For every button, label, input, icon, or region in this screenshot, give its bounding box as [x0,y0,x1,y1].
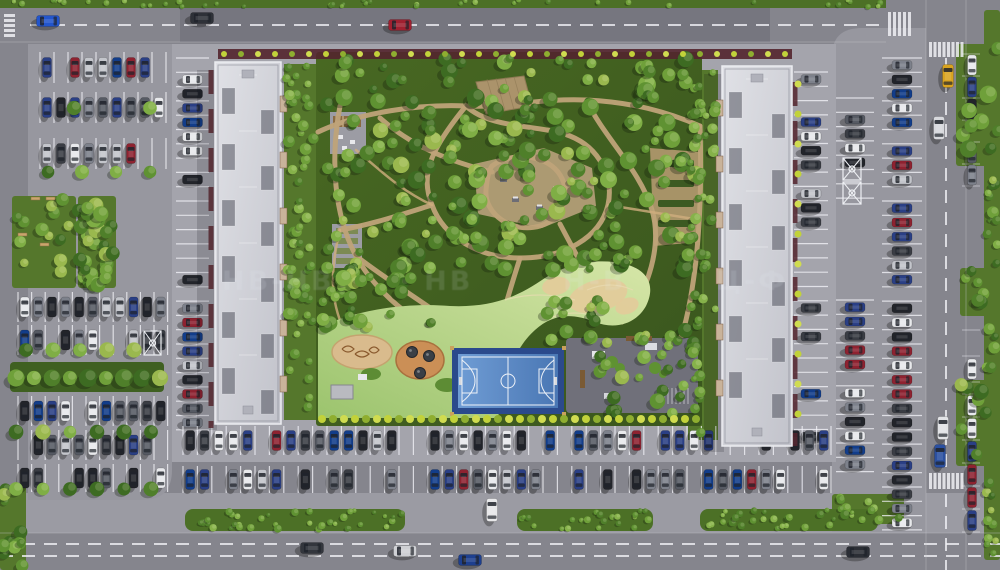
car-roof [187,364,198,367]
tree-highlight [959,379,966,386]
tree-highlight [302,292,308,298]
car-roof [849,306,860,309]
tree-highlight [432,193,437,198]
yellow-bush [604,415,612,423]
tree-highlight [693,123,699,129]
yellow-bush [795,201,802,208]
plaza-table-top [537,205,542,207]
tree-highlight [638,374,642,378]
tree-highlight [305,95,310,100]
tree-highlight [581,147,589,155]
tree-highlight [475,232,482,239]
yellow-bush [795,381,802,388]
tree-highlight [305,284,310,289]
tree-highlight [681,360,686,365]
car-rear-window [662,484,669,487]
car-rear-window [128,158,135,161]
tree-highlight [990,507,994,511]
crosswalk-bar [4,19,15,22]
tree-highlight [709,196,714,201]
car-rear-window [273,484,280,487]
car-rear-window [62,415,69,418]
car-rear-window [114,112,121,115]
tree-highlight [308,101,313,106]
tree-highlight [305,213,311,219]
tree-highlight [468,123,477,132]
car-roof [86,150,91,157]
car-roof [821,437,826,444]
car-roof [188,476,193,483]
car-roof [245,437,250,444]
tree-highlight [604,159,613,168]
car-roof [969,517,974,524]
tree-highlight [713,107,719,113]
car-rear-window [21,482,28,485]
roof-seam [239,298,257,300]
roof-seam [239,354,257,356]
car-rear-window [576,445,583,448]
car-rear-window [144,415,151,418]
car-rear-window [100,72,107,75]
roof-well [261,390,274,414]
tree-highlight [399,217,405,223]
yellow-bush [697,51,703,57]
car-roof [346,476,351,483]
roof-seam [746,358,768,360]
trampoline [415,368,426,379]
car-rear-window [518,484,525,487]
tree-highlight [200,520,203,523]
tree-highlight [987,517,992,522]
tree-highlight [307,403,312,408]
tree-highlight [371,227,377,233]
car-rear-window [35,449,42,452]
tree-highlight [593,316,600,323]
tree-highlight [988,324,994,330]
car-rear-window [460,484,467,487]
tree-highlight [321,523,325,527]
yellow-bush [459,51,465,57]
tree-highlight [460,258,466,264]
car-rear-window [201,445,208,448]
tree-highlight [530,69,535,74]
tree-highlight [838,2,841,5]
tree-highlight [479,120,485,126]
bench [31,197,40,200]
tree-highlight [586,205,591,210]
car-roof [375,437,380,444]
car-rear-window [156,112,163,115]
tree-highlight [602,75,608,81]
yellow-bush [357,51,363,57]
car-roof [849,434,860,437]
tree-highlight [991,207,998,214]
car-rear-window [748,484,755,487]
tree-highlight [337,190,344,197]
tree-highlight [322,298,327,303]
tree-highlight [298,251,303,256]
car-roof [896,78,907,81]
rooftop-unit [243,406,253,414]
plaza-table-top [513,197,518,199]
car-roof [231,437,236,444]
tree-highlight [586,188,592,194]
car-roof [187,392,198,395]
tree-highlight [105,343,113,351]
yellow-bush [527,415,535,423]
car-roof [849,334,860,337]
tree-highlight [352,115,359,122]
hoop-right [555,377,558,385]
tree-highlight [204,3,207,6]
car-rear-window [648,484,655,487]
car-rear-window [100,158,107,161]
car-roof [22,474,27,481]
yellow-bush [731,51,737,57]
tree-highlight [23,259,28,264]
tree-highlight [782,524,785,527]
tree-highlight [78,344,85,351]
car-roof [145,303,150,310]
car-roof [896,478,907,481]
tree-highlight [698,83,702,87]
tree-highlight [701,102,705,106]
tree-highlight [693,376,696,379]
yellow-bush [681,415,689,423]
yellow-bush [476,51,482,57]
picnic-table [338,135,343,139]
tree-highlight [384,514,386,516]
tree-highlight [358,249,363,254]
tree-highlight [401,511,404,514]
tree-highlight [59,266,66,273]
tree-highlight [970,267,976,273]
tree-highlight [633,525,636,528]
tree-highlight [982,289,988,295]
car-rear-window [806,445,813,448]
car-rear-window [244,445,251,448]
yellow-bush [795,261,802,268]
tree-highlight [712,147,718,153]
car-rear-window [21,415,28,418]
tree-highlight [379,284,386,291]
tree-highlight [503,262,511,270]
tree-highlight [588,265,592,269]
tree-highlight [878,516,883,521]
car-roof [63,441,68,448]
tree-highlight [597,230,603,236]
car-roof [896,207,907,210]
tree-highlight [989,363,995,369]
tree-highlight [995,260,1000,265]
tree-highlight [546,308,553,315]
tree-highlight [348,312,353,317]
car-roof [896,493,907,496]
tree-highlight [376,94,385,103]
car-rear-window [89,311,96,314]
tree-highlight [228,509,232,513]
tree-highlight [404,197,410,203]
car-roof [476,476,481,483]
car-roof [461,476,466,483]
yellow-bush [374,51,380,57]
tree-highlight [330,287,336,293]
tree-highlight [642,351,650,359]
tree-highlight [550,335,557,342]
car-rear-window [676,484,683,487]
tree-highlight [523,216,528,221]
car-roof [896,149,907,152]
tree-highlight [690,166,695,171]
car-roof [100,104,105,111]
tree-highlight [78,254,86,262]
car-roof [937,452,943,460]
trampoline [424,351,435,362]
car-roof [576,476,581,483]
yellow-bush [561,51,567,57]
car-roof [778,476,783,483]
car-roof [187,421,198,424]
tree-highlight [966,142,976,152]
tree-highlight [365,1,368,4]
tree-highlight [740,523,744,527]
car-roof [63,336,68,343]
tree-highlight [453,176,461,184]
car-roof [663,437,668,444]
tree-highlight [648,66,655,73]
crosswalk-bar [903,12,906,36]
yellow-bush [505,415,513,423]
tree-highlight [148,167,155,174]
car-rear-window [244,484,251,487]
crosswalk-bar [4,14,15,17]
tree-highlight [298,198,302,202]
car-roof [104,407,109,414]
tree-highlight [428,263,435,270]
roof-well [261,334,274,358]
car-roof [90,441,95,448]
tree-highlight [95,426,103,434]
car-rear-window [331,484,338,487]
car-roof [896,278,907,281]
car-roof [49,441,54,448]
tree-highlight [430,319,435,324]
car-roof [620,437,625,444]
car-rear-window [130,311,137,314]
yellow-bush [395,415,403,423]
car-rear-window [475,484,482,487]
car-roof [605,476,610,483]
tree-highlight [110,221,117,228]
tree-highlight [431,216,436,221]
car-rear-window [576,484,583,487]
yellow-bush [795,171,802,178]
tree-highlight [307,81,311,85]
tree-highlight [984,408,991,415]
car-roof [187,407,198,410]
car-roof [332,476,337,483]
car-roof [22,336,27,343]
car-roof [896,364,907,367]
yellow-bush [516,415,524,423]
car-roof [677,476,682,483]
tree-highlight [111,247,119,255]
car-roof [22,407,27,414]
tree-highlight [104,273,111,280]
tree-highlight [681,70,687,76]
tree-highlight [311,318,315,322]
tree-highlight [344,168,350,174]
car-rear-window [820,484,827,487]
tree-highlight [735,514,739,518]
tree-highlight [599,352,605,358]
tree-highlight [409,273,415,279]
yellow-bush [795,411,802,418]
crosswalk-bar [898,12,901,36]
tree-highlight [354,509,356,511]
crosswalk-bar [908,12,911,36]
tree-highlight [763,517,766,520]
tree-highlight [714,306,718,310]
tree-highlight [21,1,24,4]
tree-highlight [661,385,668,392]
car-rear-window [288,445,295,448]
car-roof [306,546,319,550]
tree-highlight [306,63,310,67]
car-roof [187,78,198,81]
car-rear-window [763,484,770,487]
car-roof [187,335,198,338]
car-roof [187,350,198,353]
car-rear-window [89,344,96,347]
tree-highlight [710,216,716,222]
tree-highlight [696,360,702,366]
car-rear-window [969,179,976,182]
car-roof [896,464,907,467]
car-roof [72,150,77,157]
car-rear-window [117,415,124,418]
tree-highlight [773,516,777,520]
tree-highlight [16,213,22,219]
car-roof [432,476,437,483]
car-roof [464,558,477,562]
tree-highlight [527,185,533,191]
car-rear-window [128,72,135,75]
car-roof [849,146,860,149]
bench [46,197,55,200]
tree-highlight [557,186,566,195]
tree-highlight [682,262,691,271]
tree-highlight [699,429,704,434]
car-roof [936,124,942,132]
car-rear-window [44,72,51,75]
tree-highlight [14,483,22,491]
car-roof [896,335,907,338]
tree-highlight [551,263,560,272]
tree-highlight [365,147,373,155]
tree-highlight [661,351,666,356]
car-rear-window [734,484,741,487]
tree-highlight [332,2,335,5]
car-rear-window [86,72,93,75]
tree-highlight [478,170,482,174]
tree-highlight [635,512,638,515]
roof-seam [239,186,257,188]
tree-highlight [308,244,312,248]
yellow-bush [692,415,700,423]
tree-highlight [555,126,565,136]
tree-highlight [207,517,210,520]
tree-highlight [84,265,90,271]
tree-highlight [664,156,671,163]
tree-highlight [250,525,254,529]
tree-highlight [604,360,610,366]
car-roof [677,437,682,444]
tree-highlight [686,249,693,256]
yellow-bush [648,415,656,423]
balance-beam [580,370,585,388]
tree-highlight [667,365,673,371]
car-rear-window [504,484,511,487]
tree-highlight [342,217,347,222]
tree-highlight [291,266,296,271]
roof-seam [746,302,768,304]
tree-highlight [275,522,278,525]
tree-highlight [588,332,595,339]
tree-highlight [647,517,651,521]
tree-highlight [652,92,658,98]
car-roof [519,437,524,444]
car-rear-window [216,445,223,448]
car-roof [896,106,907,109]
car-roof [749,476,754,483]
tree-highlight [401,76,406,81]
yellow-bush [362,415,370,423]
car-rear-window [21,311,28,314]
tree-highlight [352,199,360,207]
tree-highlight [512,122,521,131]
tree-highlight [414,172,424,182]
car-roof [317,437,322,444]
car-roof [187,121,198,124]
tree-highlight [547,251,552,256]
car-roof [77,303,82,310]
tree-highlight [700,250,706,256]
car-roof [288,437,293,444]
tree-highlight [617,514,620,517]
tree-highlight [987,190,991,194]
tree-highlight [308,358,312,362]
car-roof [36,407,41,414]
roof-well [261,278,274,302]
car-roof [896,249,907,252]
car-roof [399,549,412,553]
car-rear-window [604,484,611,487]
tree-highlight [149,483,157,491]
tree-highlight [698,371,704,377]
car-rear-window [969,433,976,436]
tree-highlight [540,209,547,216]
yellow-bush [461,415,469,423]
car-rear-window [58,112,65,115]
tree-highlight [490,96,498,104]
car-roof [86,64,91,71]
roof-well [222,368,235,394]
tree-highlight [840,496,845,501]
tree-highlight [553,109,562,118]
car-roof [504,437,509,444]
car-rear-window [969,410,976,413]
